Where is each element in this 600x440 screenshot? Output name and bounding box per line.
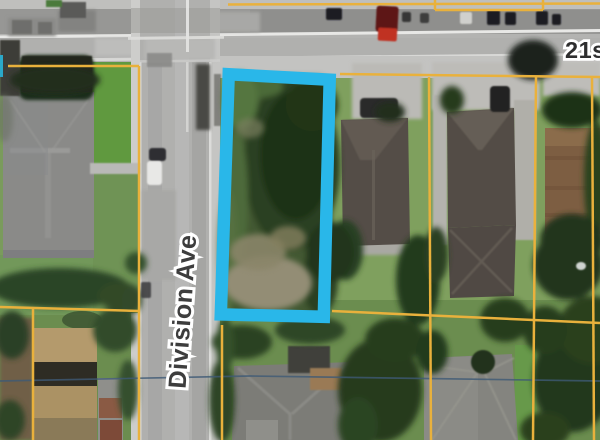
svg-text:21st: 21st bbox=[565, 37, 600, 63]
